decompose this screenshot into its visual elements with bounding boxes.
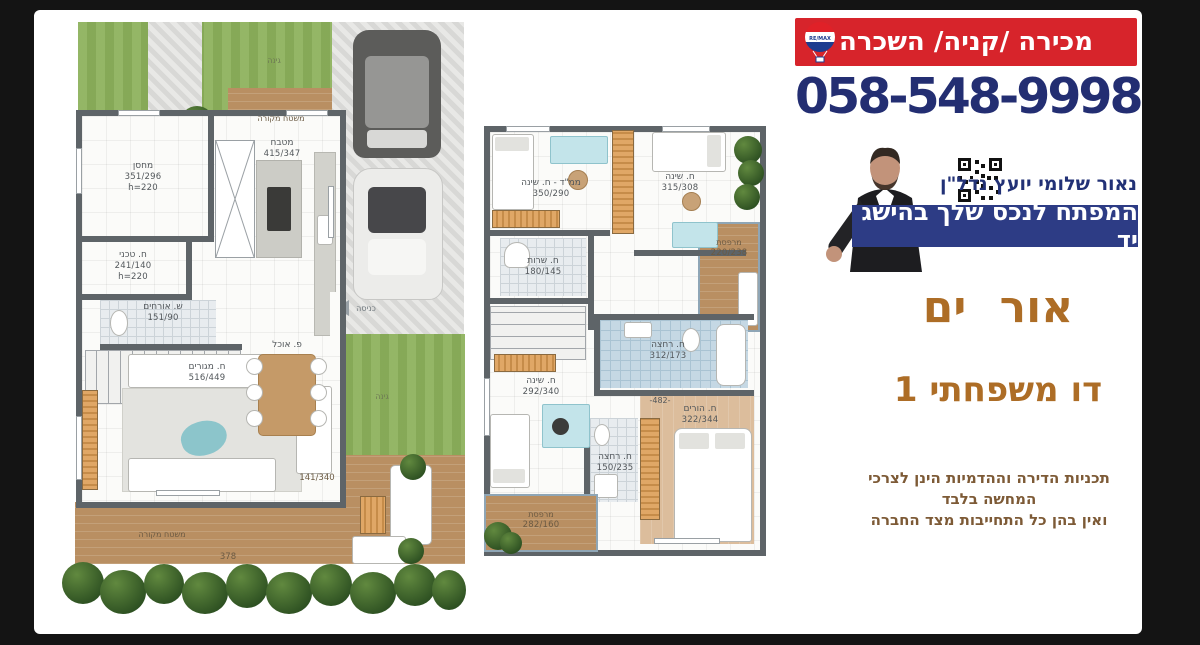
room-label-dining: פ. אוכל <box>272 340 302 351</box>
master-bed <box>674 428 752 542</box>
balcony-plant <box>734 184 760 210</box>
stove <box>267 187 291 231</box>
project-subtitle: דו משפחתי 1 <box>854 370 1142 410</box>
deck-plant <box>400 454 426 480</box>
sofa <box>128 458 276 492</box>
disclaimer: תכניות הדירה וההדמיות הינן לצרכי המחשה ב… <box>824 468 1154 531</box>
dining-chair <box>246 410 263 427</box>
pillow <box>707 135 721 167</box>
car-hood <box>368 239 426 275</box>
toilet <box>594 424 610 446</box>
wall <box>208 114 214 242</box>
entrance-opening <box>330 292 340 348</box>
pillow <box>495 137 529 151</box>
deck-plant <box>398 538 424 564</box>
deck-dims-label: 141/340 <box>299 473 334 484</box>
hedge-bush <box>266 572 312 614</box>
room-label-mamad: ממ"ד - ח. שינה350/290 <box>521 178 581 200</box>
dining-chair <box>246 384 263 401</box>
room-label-storage: מחסן351/296h=220 <box>125 161 162 194</box>
room-label-bathroom2: ח. רחצה150/235 <box>597 452 634 474</box>
room-label-bedroom2: ח. שינה315/308 <box>662 172 699 194</box>
x-cross-icon <box>216 141 254 257</box>
hedge-bush <box>310 564 352 606</box>
hedge-bush <box>226 564 268 608</box>
dining-table <box>258 354 316 436</box>
window <box>654 538 720 544</box>
window <box>156 490 220 496</box>
garden-label: גינה <box>375 392 389 401</box>
bed <box>652 132 726 172</box>
window <box>506 126 550 132</box>
window <box>328 186 334 238</box>
room-label-service: ח. שרות180/145 <box>525 256 562 278</box>
svg-text:RE/MAX: RE/MAX <box>809 36 831 42</box>
bathtub <box>716 324 746 386</box>
void-shaft <box>215 140 255 258</box>
bed <box>490 414 530 488</box>
hedge-bush <box>62 562 104 604</box>
staircase <box>490 306 586 360</box>
desk-chair <box>552 418 569 435</box>
coffee-table <box>177 415 231 462</box>
remax-balloon-icon: RE/MAX <box>801 21 839 63</box>
desk <box>550 136 608 164</box>
wall <box>484 298 592 304</box>
dining-chair <box>246 358 263 375</box>
pillow <box>715 433 745 449</box>
garden-label: גינה <box>267 56 281 65</box>
hedge-bush <box>394 564 436 606</box>
convertible-car <box>353 168 443 300</box>
upper-floor-plan: ממ"ד - ח. שינה350/290 ח. שינה315/308 מרפ… <box>484 126 766 556</box>
car-cabin <box>368 187 426 233</box>
room-label-bathroom1: ח. רחצה312/173 <box>650 340 687 362</box>
offer-banner: RE/MAX מכירה /קניה/ השכרה <box>795 18 1137 66</box>
room-label-bedroom3: ח. שינה292/340 <box>523 376 560 398</box>
deck-width-label: 378 <box>220 552 236 563</box>
hedge-bush <box>182 572 228 614</box>
wardrobe <box>494 354 556 372</box>
room-label-living: ח. מגורים516/449 <box>189 362 226 384</box>
deck-table <box>360 496 386 534</box>
wardrobe <box>492 210 560 228</box>
desk-chair <box>682 192 701 211</box>
sideboard <box>82 390 98 490</box>
dining-chair <box>310 410 327 427</box>
balcony-plant <box>500 532 522 554</box>
agent-name: נאור שלומי יועץ נדל"ן <box>939 173 1137 195</box>
pillow <box>493 469 525 483</box>
kitchen-island <box>256 160 302 258</box>
project-title: אור ים <box>854 282 1142 333</box>
dining-chair <box>310 384 327 401</box>
flyer-page: כניסה <box>34 10 1142 634</box>
hedge-bush <box>350 572 396 614</box>
dining-chair <box>310 358 327 375</box>
ground-floor-plan: כניסה <box>60 18 466 624</box>
offer-text: מכירה /קניה/ השכרה <box>839 27 1093 57</box>
wardrobe <box>612 130 634 234</box>
phone-number: 058-548-9998 <box>795 68 1137 125</box>
deck-bottom-label: משטח מקורה <box>138 530 185 540</box>
room-label-technical: ח. טכני241/140h=220 <box>115 250 152 283</box>
room-label-balcony-top: מרפסת220/238 <box>711 238 748 259</box>
room-label-balcony-bottom: מרפסת282/160 <box>523 510 560 531</box>
wardrobe <box>640 418 660 520</box>
balcony-plant <box>738 160 764 186</box>
agent-tagline: המפתח לנכס שלך בהישג יד <box>852 205 1138 247</box>
hedge-bush <box>144 564 184 604</box>
suv-windshield <box>367 130 427 148</box>
suv-car <box>353 30 441 158</box>
window <box>484 378 490 436</box>
room-label-kitchen: מטבח415/347 <box>264 138 301 160</box>
room-label-master: ח. הורים322/344 <box>682 404 719 426</box>
suv-roof <box>365 56 429 128</box>
hedge-bush <box>100 570 146 614</box>
entrance-label: כניסה <box>356 304 376 313</box>
pillow <box>679 433 709 449</box>
deck-top-label: משטח מקורה <box>257 114 304 124</box>
window <box>662 126 710 132</box>
hedge-bush <box>432 570 466 610</box>
toilet <box>110 310 128 336</box>
wall <box>80 236 214 242</box>
window <box>76 148 82 194</box>
window <box>118 110 160 116</box>
room-label-guest-wc: ש. אורחים151/90 <box>143 302 183 324</box>
window <box>76 416 82 480</box>
sink <box>624 322 652 338</box>
width-note-label: -482- <box>649 396 670 406</box>
